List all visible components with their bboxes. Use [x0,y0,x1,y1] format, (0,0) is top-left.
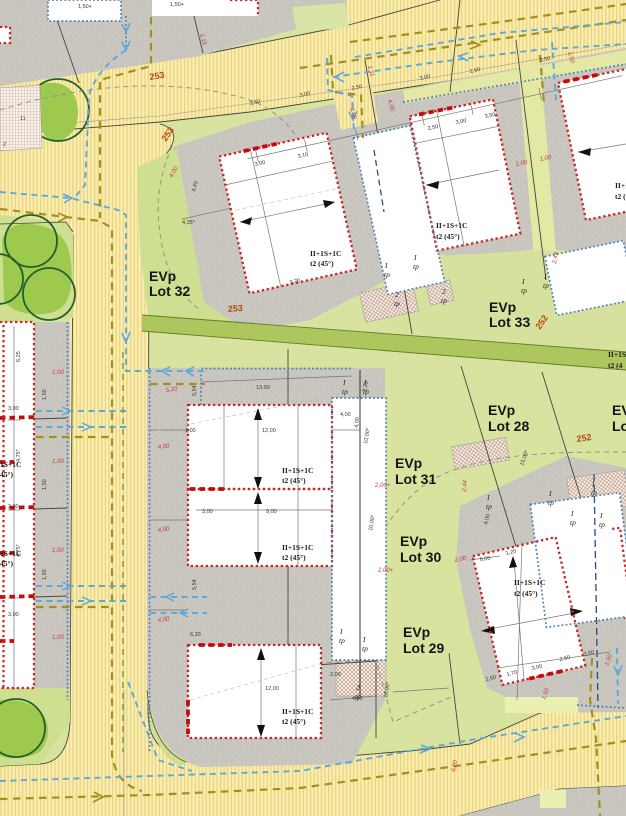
svg-text:tp: tp [342,387,348,396]
svg-text:Lot 33: Lot 33 [489,314,530,330]
svg-text:4,00: 4,00 [352,696,363,702]
svg-text:t2 (4: t2 (4 [608,361,623,370]
svg-text:I: I [486,493,490,502]
svg-text:2: 2 [442,287,446,296]
svg-text:I: I [548,489,552,498]
svg-text:1,50: 1,50 [42,389,48,400]
svg-text:tp: tp [394,299,400,308]
svg-text:1,50+: 1,50+ [170,2,184,8]
svg-text:II+1S+1C: II+1S+1C [310,249,341,258]
svg-text:t2 (45°): t2 (45°) [282,717,306,726]
svg-text:tp: tp [521,286,527,295]
svg-text:tp: tp [599,520,605,529]
svg-text:5,54: 5,54 [192,579,198,590]
svg-text:1,50+: 1,50+ [78,4,92,10]
svg-text:13,00: 13,00 [256,385,270,391]
svg-text:6,25: 6,25 [16,351,22,362]
svg-text:tp: tp [591,488,597,497]
svg-text:252: 252 [576,432,592,444]
svg-text:tp: tp [362,644,368,653]
svg-text:I: I [339,627,343,636]
svg-text:t2 (45°): t2 (45°) [282,553,306,562]
svg-text:t2 (45°): t2 (45°) [436,232,460,241]
svg-text:tp: tp [384,270,390,279]
svg-text:EVp: EVp [403,624,430,640]
svg-text:12,00: 12,00 [262,428,276,434]
svg-text:tp: tp [486,502,492,511]
svg-text:12,00: 12,00 [265,686,279,692]
svg-text:I: I [342,378,346,387]
svg-text:1,00: 1,00 [52,370,64,376]
svg-text:Lot 28: Lot 28 [488,418,529,434]
svg-text:Lot 29: Lot 29 [403,640,444,656]
svg-text:tp: tp [339,636,345,645]
svg-text:3,00: 3,00 [8,406,19,412]
svg-text:t2 (45°): t2 (45°) [310,259,334,268]
svg-text:I: I [591,479,595,488]
svg-text:1,00: 1,00 [52,459,64,465]
svg-text:4,00: 4,00 [340,412,351,418]
svg-text:tp: tp [548,498,554,507]
svg-text:I: I [570,509,574,518]
svg-text:II+1S+1C: II+1S+1C [282,466,313,475]
svg-text:2,00+: 2,00+ [374,483,391,489]
svg-text:II+1S+1C: II+1S+1C [514,578,545,587]
svg-text:3,00: 3,00 [8,504,19,510]
svg-text:t2 (: t2 ( [615,192,626,201]
svg-text:3,00: 3,00 [8,612,19,618]
svg-text:I: I [521,277,525,286]
svg-text:Lot 32: Lot 32 [149,283,190,299]
svg-text:tp: tp [570,518,576,527]
svg-text:I: I [362,635,366,644]
svg-text:2: 2 [395,290,399,299]
svg-text:2,00: 2,00 [330,672,341,678]
svg-text:I: I [599,511,603,520]
svg-text:2: 2 [356,683,360,692]
svg-text:4,35*: 4,35* [182,220,196,226]
svg-text:1,00: 1,00 [52,548,64,554]
svg-text:t2 (45°): t2 (45°) [514,589,538,598]
svg-text:11: 11 [20,116,26,122]
svg-text:2,00+: 2,00+ [377,568,394,574]
svg-text:1,50: 1,50 [42,479,48,490]
svg-text:3,00: 3,00 [202,509,213,515]
svg-text:1,00: 1,00 [52,635,64,641]
svg-text:EVp: EVp [400,533,427,549]
svg-text:6,20: 6,20 [190,632,201,638]
svg-text:4,75*: 4,75* [16,448,22,462]
svg-text:EVp: EVp [612,402,626,418]
svg-text:1,50: 1,50 [42,569,48,580]
svg-text:5,54: 5,54 [192,385,198,396]
svg-text:253: 253 [227,303,243,314]
svg-text:EVp: EVp [489,299,516,315]
svg-text:I: I [384,261,388,270]
svg-text:4,00: 4,00 [354,417,361,428]
svg-text:Lot 2: Lot 2 [612,418,626,434]
svg-text:45°): 45°) [0,470,13,479]
svg-text:II+1: II+1 [615,181,626,190]
svg-text:II+1S+1C: II+1S+1C [436,221,467,230]
svg-text:II+1S+1C: II+1S+1C [282,707,313,716]
svg-text:EVp: EVp [149,268,176,284]
svg-text:Lot 30: Lot 30 [400,549,441,565]
svg-text:I: I [413,253,417,262]
svg-text:t2 (45°): t2 (45°) [282,476,306,485]
svg-text:9,00: 9,00 [266,509,277,515]
svg-text:tp: tp [543,281,549,290]
svg-text:Lot 31: Lot 31 [395,471,436,487]
svg-text:EVp: EVp [395,455,422,471]
svg-text:2: 2 [3,142,6,148]
svg-text:I: I [543,272,547,281]
svg-text:II+1S: II+1S [608,350,626,359]
svg-text:2,44: 2,44 [462,479,469,493]
svg-text:45°): 45°) [0,559,13,568]
svg-text:EVp: EVp [488,402,515,418]
svg-text:tp: tp [413,262,419,271]
svg-text:1,00: 1,00 [185,428,196,434]
svg-text:II+1S+1C: II+1S+1C [282,543,313,552]
svg-text:4,75*: 4,75* [16,543,22,557]
svg-text:tp: tp [441,296,447,305]
